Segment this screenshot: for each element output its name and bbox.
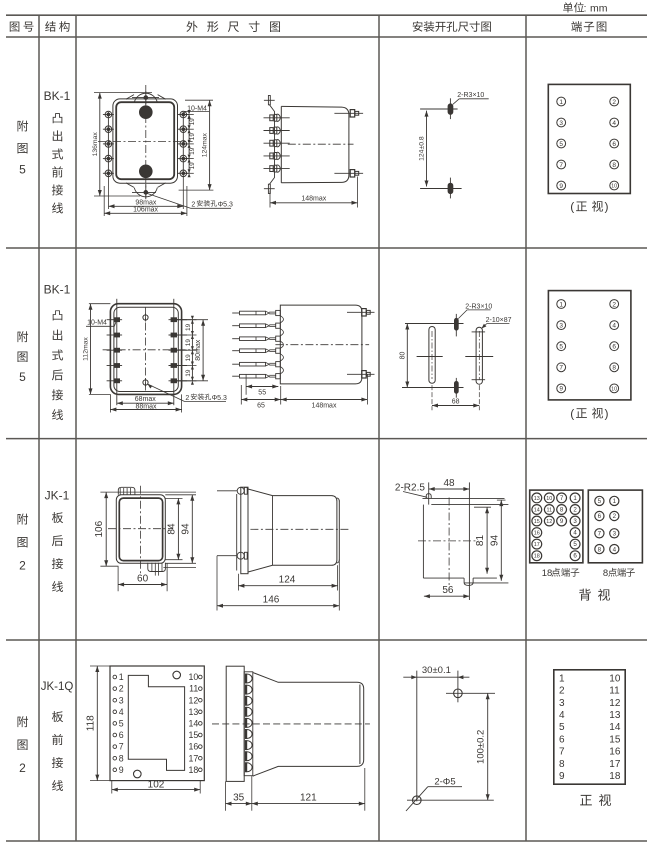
svg-text:(: ( (570, 406, 574, 420)
svg-text:2-Φ5: 2-Φ5 (434, 777, 455, 788)
svg-text:8: 8 (603, 568, 608, 579)
svg-text:19: 19 (189, 133, 196, 141)
svg-text:2: 2 (613, 513, 617, 520)
svg-text:2-R3×10: 2-R3×10 (457, 92, 484, 99)
svg-text:118: 118 (85, 715, 96, 731)
svg-text:): ) (605, 406, 609, 420)
svg-text:60: 60 (137, 573, 149, 584)
svg-text:9: 9 (119, 765, 124, 775)
svg-text:10: 10 (189, 672, 199, 682)
svg-text:6: 6 (119, 730, 124, 740)
svg-text:3: 3 (559, 120, 563, 127)
svg-text:30±0.1: 30±0.1 (422, 665, 451, 676)
svg-text:3: 3 (559, 322, 563, 329)
svg-text:1: 1 (559, 673, 565, 684)
svg-text:1: 1 (119, 672, 124, 682)
svg-text:2: 2 (19, 761, 26, 775)
svg-text:121: 121 (300, 792, 317, 803)
svg-text:68: 68 (452, 398, 460, 405)
svg-text:100±0.2: 100±0.2 (476, 730, 487, 764)
svg-text:8: 8 (559, 759, 565, 770)
svg-text:6: 6 (612, 141, 616, 148)
svg-text:16: 16 (609, 747, 621, 758)
svg-text:7: 7 (598, 531, 602, 538)
svg-text:48: 48 (443, 478, 455, 489)
svg-text:9: 9 (559, 183, 563, 190)
svg-text:9: 9 (559, 771, 565, 782)
svg-text:6: 6 (559, 734, 565, 745)
svg-text:112max: 112max (83, 337, 90, 361)
svg-text:14: 14 (609, 722, 621, 733)
svg-text:4: 4 (119, 707, 124, 717)
svg-text:6: 6 (573, 553, 577, 560)
svg-text:4: 4 (559, 710, 565, 721)
svg-text:146: 146 (263, 595, 280, 606)
svg-text:Φ5.3: Φ5.3 (212, 395, 227, 402)
svg-text:15: 15 (189, 730, 199, 740)
svg-text:10: 10 (611, 184, 617, 190)
svg-text:148max: 148max (312, 403, 337, 410)
svg-text:2: 2 (573, 507, 577, 514)
svg-text:11: 11 (189, 684, 198, 694)
svg-text:19: 19 (189, 147, 196, 155)
svg-text:14: 14 (534, 508, 540, 514)
svg-text:4: 4 (573, 530, 577, 537)
svg-text:5: 5 (19, 163, 26, 177)
svg-text:124: 124 (279, 575, 296, 586)
svg-text:2: 2 (119, 684, 124, 694)
svg-text:8: 8 (598, 546, 602, 553)
svg-text:16: 16 (534, 531, 540, 537)
svg-text:7: 7 (560, 495, 564, 502)
svg-text:5: 5 (598, 498, 602, 505)
svg-text:1: 1 (613, 498, 617, 505)
svg-text:106max: 106max (133, 206, 158, 213)
svg-text:98max: 98max (135, 199, 157, 206)
svg-text:4: 4 (612, 322, 616, 329)
svg-text:19: 19 (185, 323, 192, 331)
svg-text:35: 35 (233, 792, 245, 803)
svg-text:mm: mm (590, 2, 608, 14)
svg-text:80max: 80max (195, 339, 202, 361)
svg-text:6: 6 (612, 344, 616, 351)
svg-text:136max: 136max (92, 132, 99, 157)
svg-text:88max: 88max (135, 403, 157, 410)
svg-text:2-R3×10: 2-R3×10 (465, 303, 492, 310)
svg-text:1: 1 (559, 301, 563, 308)
svg-text:8: 8 (119, 753, 124, 763)
svg-text:19: 19 (185, 369, 192, 377)
svg-text:3: 3 (613, 531, 617, 538)
svg-text:18: 18 (189, 765, 199, 775)
svg-text:17: 17 (189, 753, 199, 763)
svg-text:2: 2 (612, 99, 616, 106)
svg-text:3: 3 (573, 518, 577, 525)
svg-text:16: 16 (189, 742, 199, 752)
svg-text:8: 8 (560, 507, 564, 514)
svg-text:13: 13 (189, 707, 199, 717)
svg-text:5: 5 (559, 344, 563, 351)
svg-text:5: 5 (559, 141, 563, 148)
svg-text:2-R2.5: 2-R2.5 (395, 482, 425, 493)
svg-text:2: 2 (191, 202, 195, 209)
svg-text:7: 7 (559, 162, 563, 169)
svg-text:8: 8 (612, 365, 616, 372)
svg-text:13: 13 (609, 710, 621, 721)
svg-text:JK-1: JK-1 (45, 488, 70, 502)
svg-text:1: 1 (559, 99, 563, 106)
svg-text:3: 3 (119, 695, 124, 705)
svg-text:56: 56 (442, 585, 454, 596)
svg-text:9: 9 (559, 386, 563, 393)
svg-text:94: 94 (180, 523, 191, 535)
svg-text:6: 6 (598, 513, 602, 520)
svg-text:17: 17 (534, 542, 540, 548)
svg-text:68max: 68max (135, 396, 157, 403)
svg-text:7: 7 (559, 365, 563, 372)
svg-text:5: 5 (19, 370, 26, 384)
svg-text:102: 102 (148, 780, 165, 791)
svg-text:): ) (605, 200, 609, 214)
svg-text:2: 2 (559, 686, 565, 697)
svg-text:3: 3 (559, 698, 565, 709)
svg-text:10: 10 (611, 386, 617, 392)
svg-text:8: 8 (612, 162, 616, 169)
svg-text:10: 10 (546, 496, 552, 502)
svg-text:(: ( (570, 200, 574, 214)
svg-text:1: 1 (573, 495, 577, 502)
svg-text:84: 84 (166, 523, 177, 535)
svg-text:4: 4 (613, 546, 617, 553)
svg-text:13: 13 (534, 496, 540, 502)
svg-text:19: 19 (185, 339, 192, 347)
svg-text:12: 12 (609, 698, 621, 709)
svg-text:5: 5 (559, 722, 565, 733)
svg-text:7: 7 (559, 747, 565, 758)
svg-text:124±0.8: 124±0.8 (418, 136, 425, 161)
svg-text:Φ5.3: Φ5.3 (218, 202, 233, 209)
svg-text:9: 9 (560, 518, 564, 525)
svg-text:2: 2 (19, 559, 26, 573)
svg-text:BK-1: BK-1 (44, 283, 71, 297)
svg-text:81: 81 (475, 535, 486, 547)
svg-text:10: 10 (609, 673, 621, 684)
svg-text:7: 7 (119, 742, 124, 752)
svg-text:17: 17 (609, 759, 621, 770)
svg-text:12: 12 (546, 519, 552, 525)
svg-text:106: 106 (94, 520, 105, 537)
svg-text:15: 15 (534, 519, 540, 525)
svg-text:11: 11 (546, 508, 552, 514)
svg-text:80: 80 (400, 352, 407, 360)
svg-text:BK-1: BK-1 (44, 89, 71, 103)
svg-text:19: 19 (189, 162, 196, 170)
svg-text:15: 15 (609, 734, 621, 745)
svg-text:18: 18 (542, 568, 553, 579)
svg-text:JK-1Q: JK-1Q (41, 681, 74, 693)
svg-text:5: 5 (573, 541, 577, 548)
svg-text:12: 12 (189, 695, 199, 705)
svg-text:65: 65 (257, 403, 265, 410)
svg-text:11: 11 (609, 686, 620, 697)
svg-text:2: 2 (612, 301, 616, 308)
svg-text:4: 4 (612, 120, 616, 127)
svg-text:18: 18 (609, 771, 621, 782)
svg-text:94: 94 (489, 535, 500, 547)
svg-text:55: 55 (258, 390, 266, 397)
svg-text:148max: 148max (301, 196, 326, 203)
svg-text:18: 18 (534, 554, 540, 560)
svg-text:10-M4: 10-M4 (87, 320, 107, 327)
svg-text:19: 19 (189, 118, 196, 126)
svg-text:2: 2 (185, 395, 189, 402)
svg-text:14: 14 (189, 719, 199, 729)
svg-text::: : (584, 3, 587, 14)
svg-text:19: 19 (185, 354, 192, 362)
svg-text:124max: 124max (202, 133, 209, 158)
svg-text:5: 5 (119, 719, 124, 729)
